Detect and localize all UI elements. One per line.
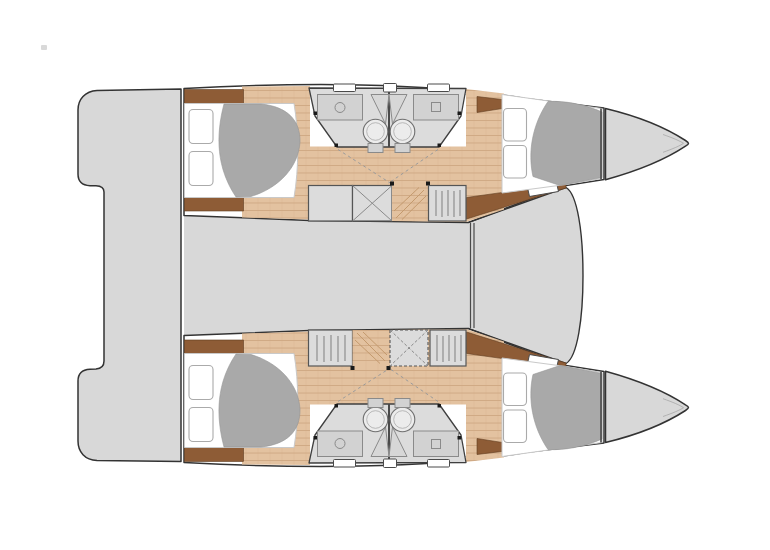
stair-post-marker bbox=[390, 182, 394, 186]
port-wardrobe-row bbox=[309, 182, 467, 222]
starboard-wardrobe-row bbox=[309, 330, 467, 370]
stair-post-marker bbox=[387, 366, 391, 370]
stair-post-marker bbox=[426, 182, 430, 186]
transom-platforms-and-cockpit bbox=[78, 89, 181, 462]
stair-post-marker bbox=[351, 366, 355, 370]
catamaran-floor-plan bbox=[0, 0, 770, 550]
wardrobe-plain bbox=[309, 186, 353, 222]
watermark-mark bbox=[41, 45, 47, 50]
floor-plan-canvas bbox=[0, 0, 770, 550]
